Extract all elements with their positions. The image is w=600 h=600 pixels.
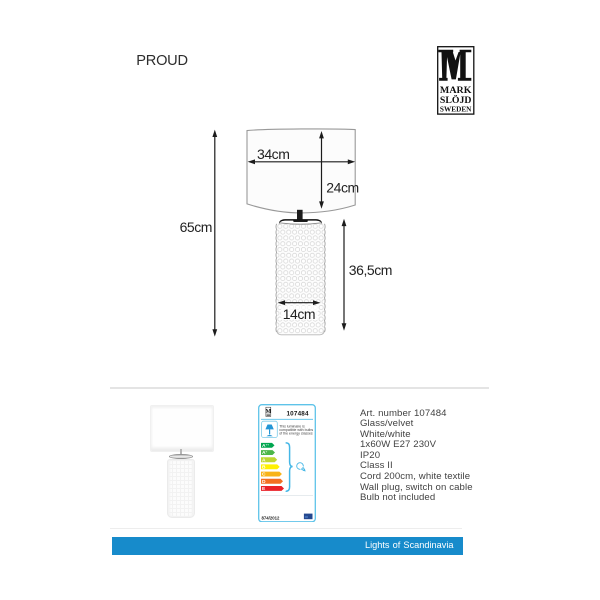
svg-text:14cm: 14cm bbox=[283, 306, 315, 322]
svg-text:24cm: 24cm bbox=[326, 179, 358, 195]
svg-text:65cm: 65cm bbox=[180, 219, 212, 235]
svg-text:A: A bbox=[262, 457, 266, 463]
svg-text:34cm: 34cm bbox=[257, 146, 289, 162]
svg-text:874/2012: 874/2012 bbox=[261, 515, 280, 520]
svg-text:of the energy classes: of the energy classes bbox=[279, 431, 313, 435]
svg-text:36,5cm: 36,5cm bbox=[349, 262, 392, 278]
svg-text:D: D bbox=[262, 478, 266, 484]
svg-text:C: C bbox=[262, 471, 266, 477]
svg-text:B: B bbox=[262, 464, 266, 470]
svg-text:107484: 107484 bbox=[286, 410, 309, 417]
